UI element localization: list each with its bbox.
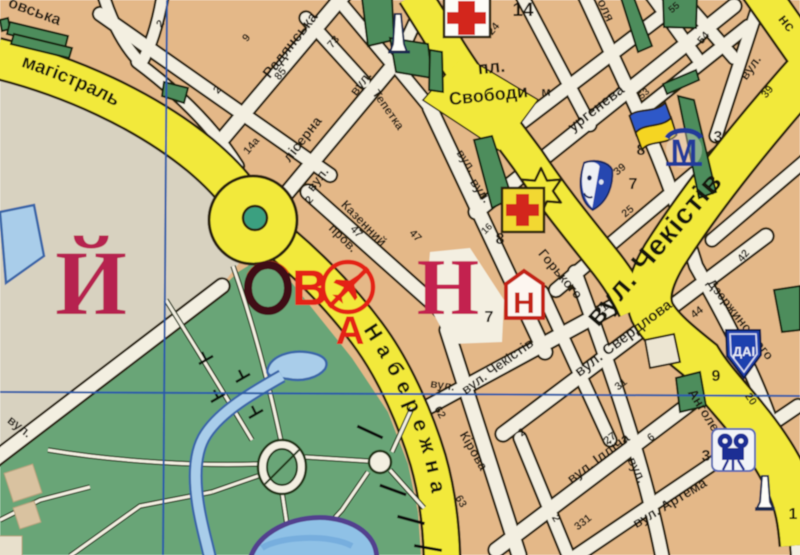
svg-text:пл.: пл. (477, 56, 506, 79)
svg-text:м: м (541, 84, 551, 99)
svg-text:14: 14 (512, 0, 534, 21)
svg-text:Й: Й (55, 232, 127, 334)
svg-text:ДАІ: ДАІ (733, 344, 755, 359)
svg-text:1: 1 (789, 506, 798, 523)
svg-text:3: 3 (714, 129, 723, 146)
svg-text:8: 8 (496, 231, 505, 248)
svg-text:9: 9 (712, 368, 721, 385)
svg-text:Н: Н (417, 244, 479, 332)
svg-text:7: 7 (629, 176, 638, 193)
svg-text:7: 7 (485, 309, 494, 326)
svg-text:3: 3 (702, 448, 711, 465)
svg-text:Н: Н (513, 287, 535, 320)
svg-text:А: А (336, 309, 365, 353)
